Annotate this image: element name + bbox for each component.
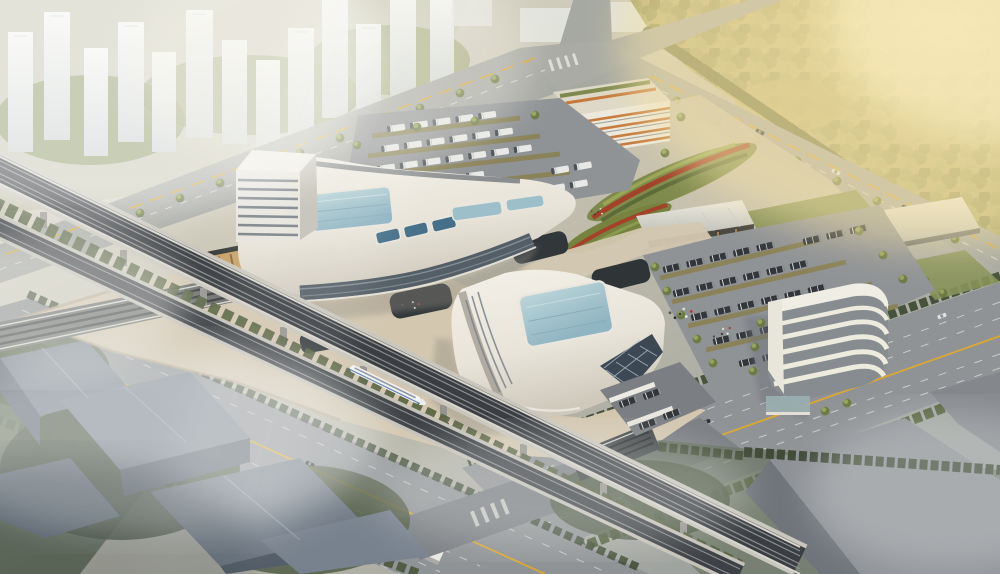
rendering-canvas bbox=[0, 0, 1000, 574]
office-entrance-fascia bbox=[766, 412, 810, 415]
aerial-rendering bbox=[0, 0, 1000, 574]
office-entrance-glass bbox=[766, 396, 810, 414]
fog-bank bbox=[370, 430, 750, 550]
